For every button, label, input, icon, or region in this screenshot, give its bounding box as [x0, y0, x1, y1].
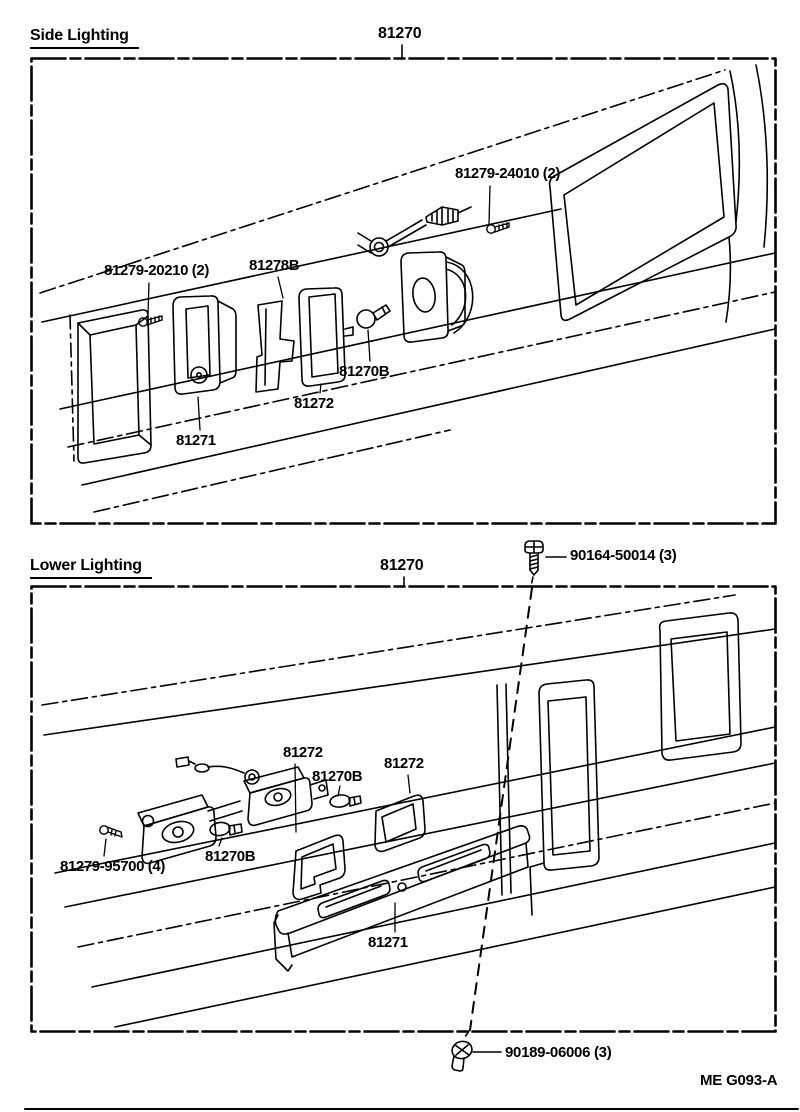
- part-label-81271-side: 81271: [176, 432, 216, 449]
- diagram-box-lower-lighting: 81272 81270B 81272 81279-95700 (4) 81270…: [30, 585, 777, 1033]
- part-label-81279-95700: 81279-95700 (4): [60, 858, 165, 875]
- grommet-screw-icon: [450, 1039, 474, 1071]
- section-title-lower-lighting: Lower Lighting: [30, 557, 152, 579]
- section-title-side-lighting: Side Lighting: [30, 27, 139, 49]
- diagram-code: ME G093-A: [700, 1072, 777, 1089]
- assembly-number-lower: 81270: [380, 557, 424, 575]
- side-lighting-line-art: [30, 57, 777, 525]
- part-label-81279-24010: 81279-24010 (2): [455, 165, 560, 182]
- part-label-81272-side: 81272: [294, 395, 334, 412]
- assembly-number-side: 81270: [378, 25, 422, 43]
- part-label-81272-lower-2: 81272: [384, 755, 424, 772]
- part-label-81271-lower: 81271: [368, 934, 408, 951]
- fastener-label-90164-50014: 90164-50014 (3): [570, 547, 676, 564]
- part-label-81279-20210: 81279-20210 (2): [104, 262, 209, 279]
- part-label-81270B-lower-2: 81270B: [205, 848, 255, 865]
- part-label-81278B: 81278B: [249, 257, 299, 274]
- lower-lighting-line-art: [30, 585, 777, 1033]
- parts-catalog-page: { "page": { "footer_code": "ME G093-A", …: [0, 0, 800, 1112]
- part-label-81272-lower-1: 81272: [283, 744, 323, 761]
- part-label-81270B-side: 81270B: [339, 363, 389, 380]
- screw-icon: [525, 541, 543, 575]
- part-label-81270B-lower-1: 81270B: [312, 768, 362, 785]
- diagram-box-side-lighting: 81279-24010 (2) 81279-20210 (2) 81278B 8…: [30, 57, 777, 525]
- fastener-label-90189-06006: 90189-06006 (3): [505, 1044, 611, 1061]
